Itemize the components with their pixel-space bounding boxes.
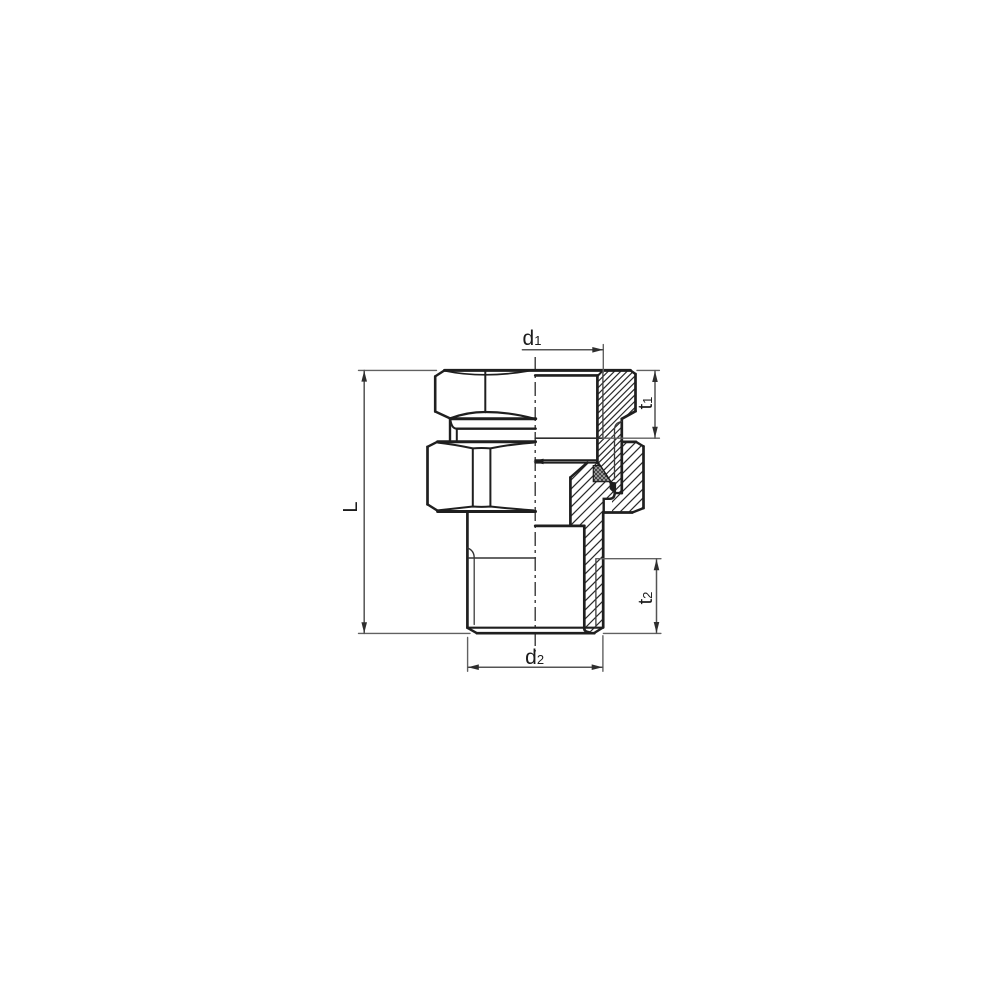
svg-text:L: L xyxy=(340,501,362,512)
